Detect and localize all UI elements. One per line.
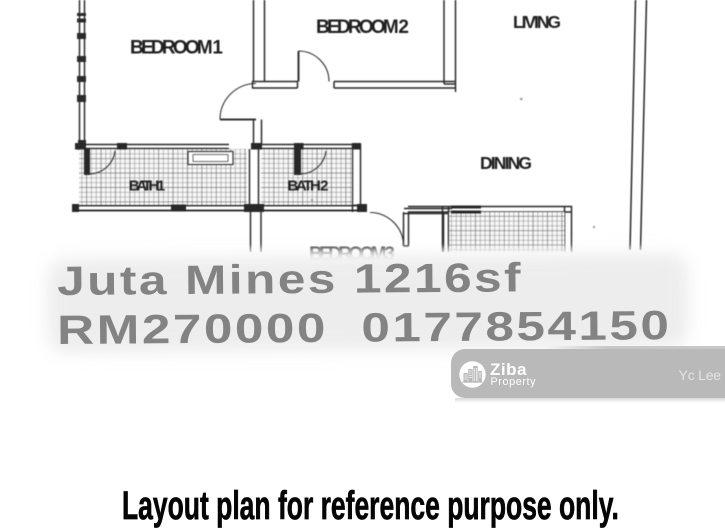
- svg-text:DINING: DINING: [480, 153, 532, 173]
- svg-text:BATH 1: BATH 1: [129, 178, 166, 195]
- svg-text:LIVING: LIVING: [513, 12, 561, 32]
- svg-text:BEDROOM 1: BEDROOM 1: [130, 38, 223, 59]
- svg-text:BATH 2: BATH 2: [288, 178, 329, 195]
- svg-text:BEDROOM 2: BEDROOM 2: [316, 17, 409, 38]
